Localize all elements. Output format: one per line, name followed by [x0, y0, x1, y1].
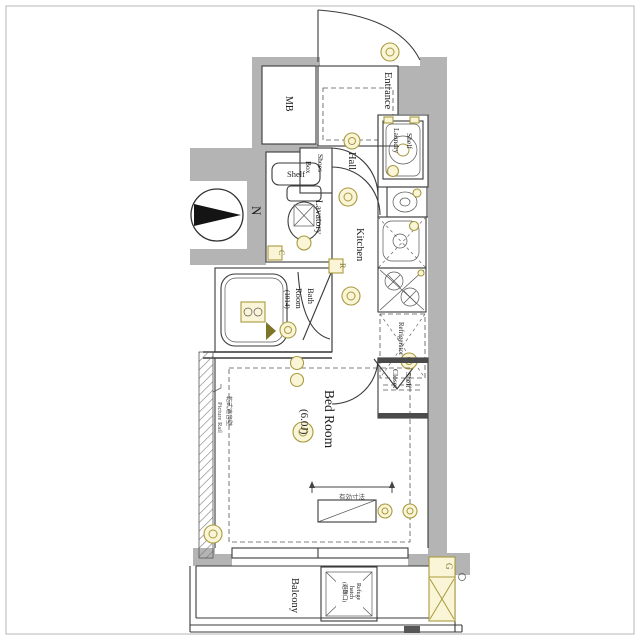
- stove-knob: [418, 270, 424, 276]
- bedroom-sconce-1: [291, 357, 304, 370]
- meter-r-label: R: [338, 263, 347, 269]
- closet-label-2: Closet: [391, 369, 400, 389]
- picture-rail-label: Picture Rail: [216, 402, 223, 433]
- bath-label-2: Room: [294, 288, 304, 309]
- lavatory-label: Lavatory: [313, 200, 323, 235]
- washer-drain: [388, 166, 399, 177]
- closet-label-1: Shelf: [404, 372, 413, 388]
- sink-faucet: [410, 222, 419, 231]
- floor-plan-canvas: 乾式遮音壁 Picture Rail: [0, 0, 640, 640]
- window-corner-symbol: [204, 525, 222, 543]
- laundry-label-2: Laundry: [392, 128, 401, 154]
- hall-label: Hall: [346, 152, 357, 170]
- kitchen-light: [342, 287, 360, 305]
- balcony: [190, 566, 466, 633]
- closet-top-bar: [378, 358, 428, 363]
- washer-tap-right: [410, 117, 419, 123]
- stove: [378, 268, 426, 312]
- lavatory-shelf-label: Shelf: [287, 169, 305, 179]
- balcony-drain: [404, 626, 420, 633]
- ac-outlet-2: [403, 504, 417, 518]
- sink-drain: [393, 234, 407, 248]
- gas-meter-box: G: [429, 557, 455, 621]
- washer-tap-left: [384, 117, 393, 123]
- refuge-hatch-label-2: hatch: [348, 586, 354, 599]
- closet-bottom-bar: [378, 413, 428, 418]
- tub-controls: [241, 302, 265, 322]
- laundry-label-1: Shelf: [405, 133, 414, 149]
- hall-light: [339, 188, 357, 206]
- shoes-box-label-2: Box: [304, 161, 313, 174]
- shoes-box-label-1: Shoes: [316, 154, 325, 172]
- gas-meter-label: G: [444, 563, 454, 570]
- refrigerator-label: Refrigerator: [397, 322, 404, 356]
- balcony-label: Balcony: [289, 578, 300, 614]
- floor-plan-page: 乾式遮音壁 Picture Rail: [0, 0, 640, 640]
- refuge-hatch-label-1: Refuge: [355, 583, 362, 601]
- basin-drain: [400, 198, 410, 206]
- bedroom-sconce-2: [291, 374, 304, 387]
- entrance-light: [344, 133, 360, 149]
- wall-mb-left: [252, 57, 262, 152]
- bath-light-symbol: [280, 322, 296, 338]
- kitchen-sink: [378, 217, 426, 268]
- compass-north-label: N: [249, 206, 264, 216]
- wall-entrance-right: [398, 57, 447, 114]
- exterior-light: [381, 43, 399, 61]
- ac-outlet-1: [378, 504, 392, 518]
- bedroom-label: Bed Room: [322, 390, 337, 449]
- refuge-hatch: Refuge hatch (避難口): [321, 567, 377, 621]
- wall-right-column: [428, 114, 447, 554]
- entrance-door-arc: [318, 10, 420, 60]
- room-bathroom: [215, 268, 332, 352]
- basin-faucet: [413, 189, 421, 197]
- mb-label: MB: [283, 96, 294, 112]
- bath-label-3: (1014): [283, 290, 291, 309]
- meter-c-label: C: [277, 250, 286, 255]
- toilet-light-symbol: [297, 236, 311, 250]
- refuge-hatch-label-3: (避難口): [341, 582, 349, 602]
- washbasin-vanity: [387, 187, 427, 217]
- bedroom-size-label: (6.0J): [298, 409, 310, 435]
- dimension-note: 有効寸法: [339, 492, 366, 501]
- bath-label-1: Bath: [306, 288, 316, 305]
- entrance-label: Entrance: [382, 72, 393, 110]
- kitchen-label: Kitchen: [354, 228, 365, 262]
